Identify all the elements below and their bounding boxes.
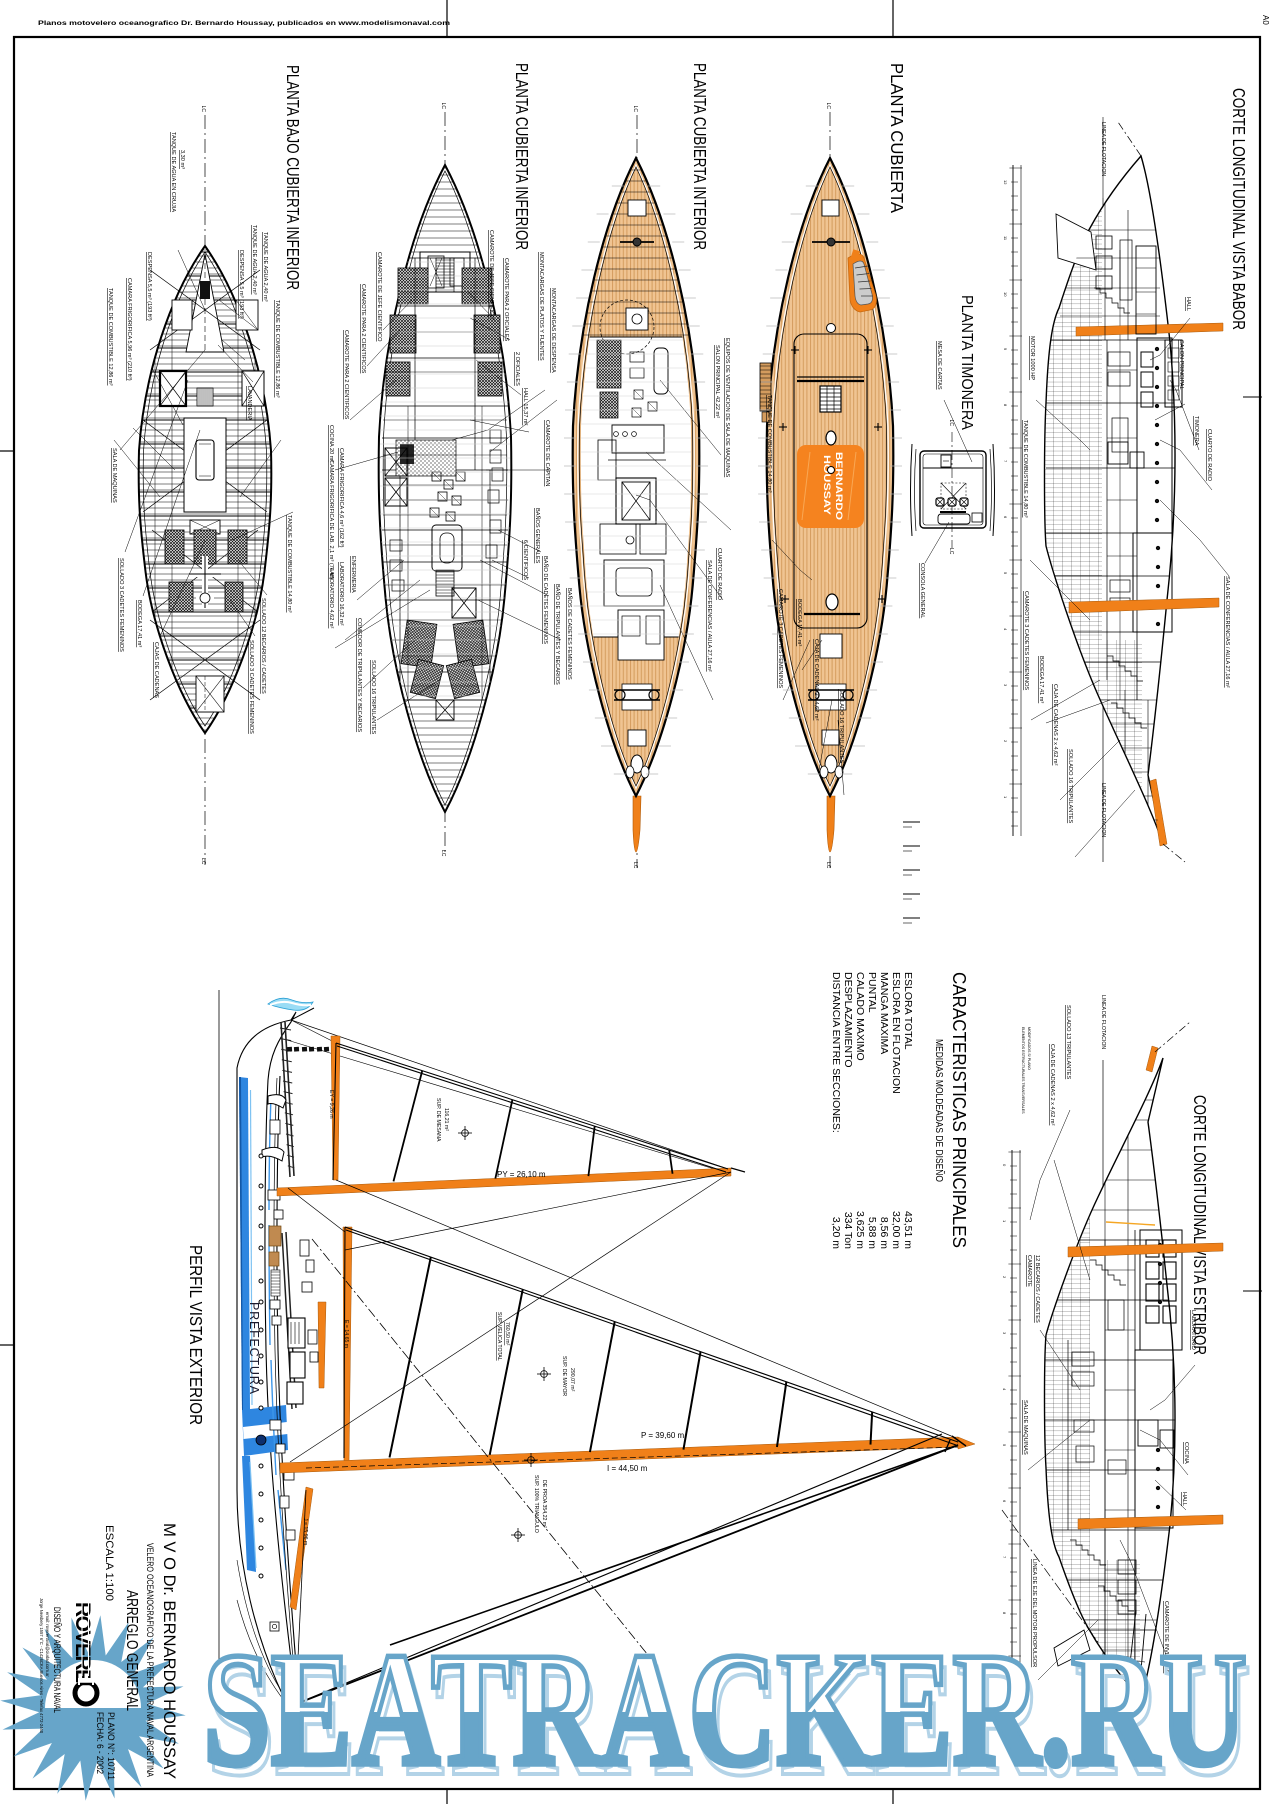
svg-text:Planos motovelero oceanografic: Planos motovelero oceanografico Dr. Bern… xyxy=(38,20,450,27)
svg-text:DESPENSA 5,5 m³ (193 ft³): DESPENSA 5,5 m³ (193 ft³) xyxy=(238,250,244,319)
svg-text:DISTANCIA ENTRE SECCIONES:: DISTANCIA ENTRE SECCIONES: xyxy=(830,972,842,1133)
svg-text:SUP. DE MAYOR: SUP. DE MAYOR xyxy=(561,1356,567,1396)
svg-text:2 OFICIALES: 2 OFICIALES xyxy=(514,352,520,386)
svg-text:ARREGLO GENERAL: ARREGLO GENERAL xyxy=(123,1590,140,1711)
svg-text:BAÑO DE TRIPULANTES Y BECARIOS: BAÑO DE TRIPULANTES Y BECARIOS xyxy=(554,584,561,685)
svg-text:SOLLADO 16 TRIPULANTES: SOLLADO 16 TRIPULANTES xyxy=(838,689,844,763)
svg-text:LC: LC xyxy=(948,548,954,555)
svg-text:FECHA: 6 - 2002: FECHA: 6 - 2002 xyxy=(95,1712,105,1774)
svg-text:DE PROA 354,22 m²: DE PROA 354,22 m² xyxy=(541,1480,547,1528)
svg-text:SOLLADO 3 CADETES FEMENINOS: SOLLADO 3 CADETES FEMENINOS xyxy=(118,558,124,652)
svg-text:290,07 m²: 290,07 m² xyxy=(569,1368,575,1392)
svg-text:BODEGA 17,41 m³: BODEGA 17,41 m³ xyxy=(1038,656,1044,703)
svg-text:SOLLADO 12 BECARIOS / CADETES: SOLLADO 12 BECARIOS / CADETES xyxy=(260,598,266,694)
svg-text:P = 39,60 m: P = 39,60 m xyxy=(641,1431,685,1440)
svg-text:email: roverenaval@ciudad.com.: email: roverenaval@ciudad.com.ar xyxy=(45,1612,50,1677)
svg-text:CUARTO DE RADIO: CUARTO DE RADIO xyxy=(716,548,722,601)
svg-text:PY = 26,10 m: PY = 26,10 m xyxy=(497,1170,546,1179)
svg-text:MEDIDAS MOLDEADAS DE DISEÑO: MEDIDAS MOLDEADAS DE DISEÑO xyxy=(933,1039,946,1182)
svg-text:SUP. 100% TRIANGULO: SUP. 100% TRIANGULO xyxy=(533,1475,539,1533)
svg-text:LABORATORIO 4,62 m²: LABORATORIO 4,62 m² xyxy=(328,568,334,629)
svg-text:TANQUE DE COMBUSTIBLE 14,80 m³: TANQUE DE COMBUSTIBLE 14,80 m³ xyxy=(286,515,292,613)
svg-text:CUARTO DE RADIO: CUARTO DE RADIO xyxy=(1206,429,1212,482)
svg-text:TANQUE DE COMBUSTIBLE 14,80 m³: TANQUE DE COMBUSTIBLE 14,80 m³ xyxy=(1022,420,1028,518)
svg-text:PLANTA CUBIERTA INFERIOR: PLANTA CUBIERTA INFERIOR xyxy=(512,63,532,250)
svg-text:SALA DE CONFERENCIAS / AULA 2: SALA DE CONFERENCIAS / AULA 27,16 m² xyxy=(706,560,712,672)
svg-text:HALL: HALL xyxy=(1185,297,1191,311)
svg-text:8,56 m: 8,56 m xyxy=(878,1217,890,1249)
svg-text:10: 10 xyxy=(1003,292,1008,297)
svg-text:COCINA: COCINA xyxy=(1183,1442,1189,1464)
svg-text:CAJAS DE CADENAS: CAJAS DE CADENAS xyxy=(153,642,159,698)
svg-text:TANQUE DE AGUA 2,40 m³: TANQUE DE AGUA 2,40 m³ xyxy=(251,225,257,295)
svg-text:ESCALA 1:100: ESCALA 1:100 xyxy=(103,1525,115,1601)
svg-text:3,20 m: 3,20 m xyxy=(830,1217,842,1249)
svg-text:LC: LC xyxy=(632,106,638,113)
svg-text:PUNTAL: PUNTAL xyxy=(866,972,878,1013)
svg-text:LABORATORIO: LABORATORIO xyxy=(1190,1310,1196,1351)
svg-text:LINEA DE FLOTACION: LINEA DE FLOTACION xyxy=(1100,783,1106,837)
svg-text:SOLLADO 3 CADETES FEMENINOS: SOLLADO 3 CADETES FEMENINOS xyxy=(248,640,254,734)
svg-text:HALL: HALL xyxy=(1181,1492,1187,1506)
svg-text:MANGA MAXIMA: MANGA MAXIMA xyxy=(878,972,890,1054)
svg-text:PLANO N°: 10711: PLANO N°: 10711 xyxy=(106,1712,116,1780)
svg-text:SALON PRINCIPAL: SALON PRINCIPAL xyxy=(1178,340,1184,390)
svg-text:I = 44,50 m: I = 44,50 m xyxy=(607,1464,648,1473)
svg-text:MODIFICADOS S/ PLANO: MODIFICADOS S/ PLANO xyxy=(1027,1027,1031,1070)
svg-text:116,21 m²: 116,21 m² xyxy=(443,1108,449,1131)
svg-text:CAMAROTE: CAMAROTE xyxy=(1026,1255,1032,1287)
svg-text:SALA DE CONFERENCIAS / AULA 27: SALA DE CONFERENCIAS / AULA 27,16 m² xyxy=(1224,576,1230,688)
svg-text:CAMAROTE DE JEFE CIENTIFICO: CAMAROTE DE JEFE CIENTIFICO xyxy=(376,252,382,342)
svg-text:ELEMENTOS ESTRUCTURALES TRANSV: ELEMENTOS ESTRUCTURALES TRANSVERSALES xyxy=(1021,1027,1025,1114)
svg-text:12 BECARIOS / CADETES: 12 BECARIOS / CADETES xyxy=(1034,1255,1040,1323)
svg-text:BAÑOS DE CADETES FEMENINOS: BAÑOS DE CADETES FEMENINOS xyxy=(566,588,573,680)
svg-text:MOTOR 1000 HP: MOTOR 1000 HP xyxy=(1029,336,1035,380)
svg-text:PLANTA TIMONERA: PLANTA TIMONERA xyxy=(958,295,975,430)
svg-text:760,50 m²: 760,50 m² xyxy=(504,1322,510,1346)
svg-text:LINEA DE FLOTACION: LINEA DE FLOTACION xyxy=(1100,995,1106,1049)
svg-text:EY = 9,26 m: EY = 9,26 m xyxy=(328,1090,334,1119)
svg-text:PLANTA CUBIERTA: PLANTA CUBIERTA xyxy=(887,63,907,213)
svg-text:SUP. DE MESANA: SUP. DE MESANA xyxy=(435,1098,441,1142)
svg-text:LABORATORIO 16,32 m²: LABORATORIO 16,32 m² xyxy=(338,562,344,626)
svg-text:SOLLADO 13 TRIPULANTES: SOLLADO 13 TRIPULANTES xyxy=(1065,1005,1071,1079)
svg-text:Jorge Newbery 1557 6°C - C1426: Jorge Newbery 1557 6°C - C1426CKA Buenos… xyxy=(39,1598,44,1734)
svg-text:DISEÑO Y ARQUITECTURA NAVAL: DISEÑO Y ARQUITECTURA NAVAL xyxy=(52,1607,62,1713)
svg-text:BAÑOS GENERALES: BAÑOS GENERALES xyxy=(534,508,541,564)
svg-text:E = 14,65 m: E = 14,65 m xyxy=(343,1320,349,1348)
svg-text:SALON PRINCIPAL 42,22 m²: SALON PRINCIPAL 42,22 m² xyxy=(714,345,720,418)
svg-text:HOUSSAY: HOUSSAY xyxy=(821,455,832,516)
svg-text:COMEDOR DE TRIPULANTES Y BECAR: COMEDOR DE TRIPULANTES Y BECARIOS xyxy=(356,618,362,732)
svg-text:PLANTA CUBIERTA INTERIOR: PLANTA CUBIERTA INTERIOR xyxy=(690,63,710,250)
svg-text:32,00 m: 32,00 m xyxy=(890,1211,902,1249)
svg-text:MONTACARGAS DE DESPENSA: MONTACARGAS DE DESPENSA xyxy=(550,288,556,373)
svg-text:DESPLAZAMIENTO: DESPLAZAMIENTO xyxy=(842,972,854,1068)
svg-text:TANQUE DE AGUA EN CRUJIA: TANQUE DE AGUA EN CRUJIA xyxy=(170,132,176,212)
svg-text:COCINA 20 m³: COCINA 20 m³ xyxy=(328,425,334,462)
svg-text:CAJA DE CADENAS 2 x 4,62 m²: CAJA DE CADENAS 2 x 4,62 m² xyxy=(1049,1044,1055,1126)
svg-text:LC: LC xyxy=(825,103,831,110)
svg-text:SALA DE MAQUINAS: SALA DE MAQUINAS xyxy=(111,448,117,503)
svg-text:TANQUE DE COMBUSTIBLE 12,86 m³: TANQUE DE COMBUSTIBLE 12,86 m³ xyxy=(274,300,280,398)
svg-text:BAÑO DE CADETES FEMENINOS: BAÑO DE CADETES FEMENINOS xyxy=(542,556,549,644)
svg-text:3,30 m³: 3,30 m³ xyxy=(179,150,185,169)
svg-text:PERFIL VISTA EXTERIOR: PERFIL VISTA EXTERIOR xyxy=(186,1245,206,1425)
svg-text:DESPENSA 5,5 m³ (193 ft³): DESPENSA 5,5 m³ (193 ft³) xyxy=(146,252,152,321)
svg-text:BODEGA 17,41 m³: BODEGA 17,41 m³ xyxy=(796,599,802,646)
svg-text:LINEA DE FLOTACION: LINEA DE FLOTACION xyxy=(1100,122,1106,176)
svg-text:LC: LC xyxy=(200,106,206,113)
svg-text:MESA DE CARTAS: MESA DE CARTAS xyxy=(936,341,942,390)
svg-text:CAMARA FRIGORIFICA 4,6 m³ (162: CAMARA FRIGORIFICA 4,6 m³ (162 ft³) xyxy=(338,448,344,548)
svg-text:CAMAROTE PARA 2 CIENTIFICOS: CAMAROTE PARA 2 CIENTIFICOS xyxy=(360,284,366,374)
svg-text:LC: LC xyxy=(825,862,831,869)
svg-text:EQUIPOS DE VENTILACION DE SALA: EQUIPOS DE VENTILACION DE SALA DE MAQUIN… xyxy=(724,338,730,478)
svg-text:CAMAROTE 3 CADETES FEMENINOS: CAMAROTE 3 CADETES FEMENINOS xyxy=(777,589,783,688)
svg-text:TANQUE DE AGUA 2,40 m³: TANQUE DE AGUA 2,40 m³ xyxy=(262,232,268,302)
svg-text:CAMARA FRIGORIFICA 5,96 m³ (21: CAMARA FRIGORIFICA 5,96 m³ (210 ft³) xyxy=(126,278,132,381)
svg-text:CAJA DE CADENAS 2 x 4,62 m²: CAJA DE CADENAS 2 x 4,62 m² xyxy=(1052,684,1058,766)
svg-text:3,625 m: 3,625 m xyxy=(854,1211,866,1249)
svg-text:SOLLADO 16 TRIPULANTES: SOLLADO 16 TRIPULANTES xyxy=(370,660,376,734)
svg-text:A0: A0 xyxy=(1261,15,1270,25)
svg-text:CORTE LONGITUDINAL VISTA BA: CORTE LONGITUDINAL VISTA BABOR xyxy=(1229,88,1249,330)
svg-text:BERNARDO: BERNARDO xyxy=(833,452,844,520)
svg-text:CAMAROTE DE CAPITAN: CAMAROTE DE CAPITAN xyxy=(544,420,550,486)
svg-text:CAMAROTE PARA 2 OFICIALES: CAMAROTE PARA 2 OFICIALES xyxy=(503,258,509,341)
svg-text:ESLORA EN FLOTACION: ESLORA EN FLOTACION xyxy=(890,972,902,1094)
svg-text:CAMAROTE 3 CADETES FEMENINOS: CAMAROTE 3 CADETES FEMENINOS xyxy=(1023,591,1029,690)
svg-text:HALL 15,37 m²: HALL 15,37 m² xyxy=(522,388,528,426)
svg-text:ESLORA TOTAL: ESLORA TOTAL xyxy=(902,972,914,1050)
svg-text:CONSOLA GENERAL: CONSOLA GENERAL xyxy=(919,563,925,618)
svg-text:CAMARA FRIGORIFICA DE LAB. 2,1: CAMARA FRIGORIFICA DE LAB. 2,1 m³ (74 ft… xyxy=(328,460,334,579)
svg-text:SUP. VELICA TOTAL: SUP. VELICA TOTAL xyxy=(496,1312,502,1361)
svg-text:CARACTERISTICAS PRINCIPALES: CARACTERISTICAS PRINCIPALES xyxy=(949,972,970,1248)
svg-text:ENFERMERIA: ENFERMERIA xyxy=(350,556,356,593)
svg-text:LC: LC xyxy=(440,850,446,857)
svg-text:CAMAROTE DE JEFE CIENTIFICO: CAMAROTE DE JEFE CIENTIFICO xyxy=(488,230,494,320)
svg-text:PLANTA BAJO CUBIERTA INFERIOR: PLANTA BAJO CUBIERTA INFERIOR xyxy=(283,65,303,290)
svg-text:CAMAROTE PARA 2 CIENTIFICOS: CAMAROTE PARA 2 CIENTIFICOS xyxy=(343,330,349,420)
svg-text:LC: LC xyxy=(440,103,446,110)
svg-text:TIMONERA: TIMONERA xyxy=(1193,416,1199,446)
svg-text:5,88 m: 5,88 m xyxy=(866,1217,878,1249)
svg-text:LAVANDERIA: LAVANDERIA xyxy=(246,386,252,421)
svg-text:SALA DE MAQUINAS: SALA DE MAQUINAS xyxy=(1022,1400,1028,1455)
svg-text:MONTACARGAS DE PLATOS Y FUENTE: MONTACARGAS DE PLATOS Y FUENTES xyxy=(538,252,544,361)
svg-text:TANQUE DE COMBUSTIBLE 12,86 m³: TANQUE DE COMBUSTIBLE 12,86 m³ xyxy=(107,288,113,386)
svg-text:6 CIENTIFICOS: 6 CIENTIFICOS xyxy=(522,540,528,580)
svg-text:43,51 m: 43,51 m xyxy=(902,1211,914,1249)
svg-text:CALADO MAXIMO: CALADO MAXIMO xyxy=(854,972,866,1061)
svg-text:BODEGA 17,41 m³: BODEGA 17,41 m³ xyxy=(136,600,142,647)
svg-text:12: 12 xyxy=(1003,180,1008,185)
svg-text:334 Ton: 334 Ton xyxy=(842,1212,854,1249)
svg-text:VELERO OCEANOGRAFICO DE LA PR: VELERO OCEANOGRAFICO DE LA PREFECTURA NA… xyxy=(144,1543,155,1777)
svg-text:TANQUE DE COMBUSTIBLE 14,80 m³: TANQUE DE COMBUSTIBLE 14,80 m³ xyxy=(766,395,772,493)
svg-text:CAJA DE CADENAS 2 x 4,62 m²: CAJA DE CADENAS 2 x 4,62 m² xyxy=(813,639,819,721)
svg-text:J = 15,96 m: J = 15,96 m xyxy=(302,1518,308,1545)
svg-text:LC: LC xyxy=(200,858,206,865)
svg-text:LC: LC xyxy=(632,862,638,869)
svg-text:SOLLADO 16 TRIPULANTES: SOLLADO 16 TRIPULANTES xyxy=(1067,749,1073,823)
svg-text:M V O Dr. BERNARDO HOUSSAY: M V O Dr. BERNARDO HOUSSAY xyxy=(160,1523,178,1779)
